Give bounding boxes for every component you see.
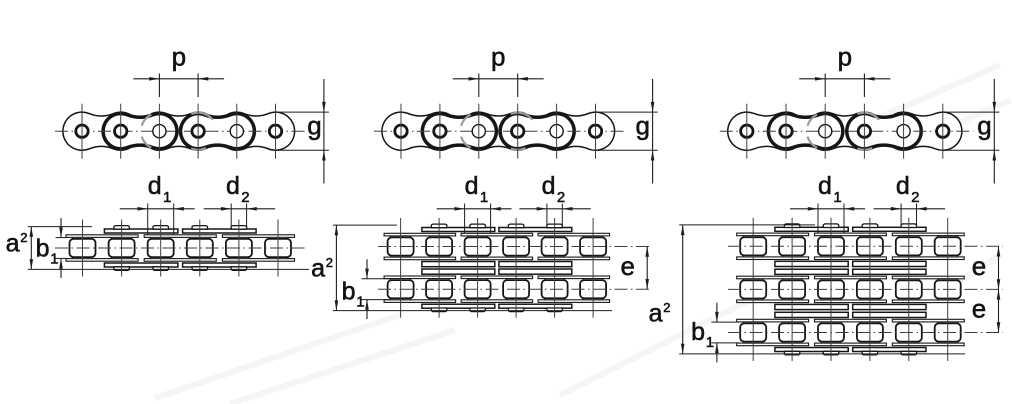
svg-text:1: 1 <box>480 189 488 206</box>
svg-text:d: d <box>542 172 556 200</box>
svg-text:g: g <box>307 111 321 141</box>
svg-text:1: 1 <box>50 251 58 268</box>
svg-text:d: d <box>818 172 832 200</box>
svg-text:p: p <box>172 42 186 72</box>
svg-text:1: 1 <box>706 334 714 351</box>
svg-text:2: 2 <box>911 189 919 206</box>
svg-text:e: e <box>620 251 634 281</box>
svg-text:g: g <box>635 111 649 141</box>
svg-text:2: 2 <box>326 255 333 270</box>
svg-text:d: d <box>226 172 240 200</box>
svg-text:a: a <box>311 255 325 283</box>
svg-text:g: g <box>977 111 991 141</box>
svg-text:a: a <box>6 230 20 258</box>
svg-text:2: 2 <box>663 300 670 315</box>
svg-text:e: e <box>972 251 986 281</box>
svg-text:1: 1 <box>833 189 841 206</box>
svg-text:2: 2 <box>557 189 565 206</box>
svg-text:1: 1 <box>356 294 364 311</box>
svg-text:2: 2 <box>241 189 249 206</box>
svg-text:1: 1 <box>163 189 171 206</box>
svg-text:b: b <box>342 278 356 306</box>
svg-text:2: 2 <box>20 230 27 245</box>
svg-text:d: d <box>148 172 162 200</box>
svg-text:p: p <box>838 42 852 72</box>
svg-text:p: p <box>491 42 505 72</box>
svg-text:a: a <box>649 300 663 328</box>
svg-text:b: b <box>691 318 705 346</box>
svg-text:e: e <box>972 294 986 324</box>
svg-text:d: d <box>465 172 479 200</box>
svg-text:d: d <box>896 172 910 200</box>
svg-text:b: b <box>36 235 50 263</box>
